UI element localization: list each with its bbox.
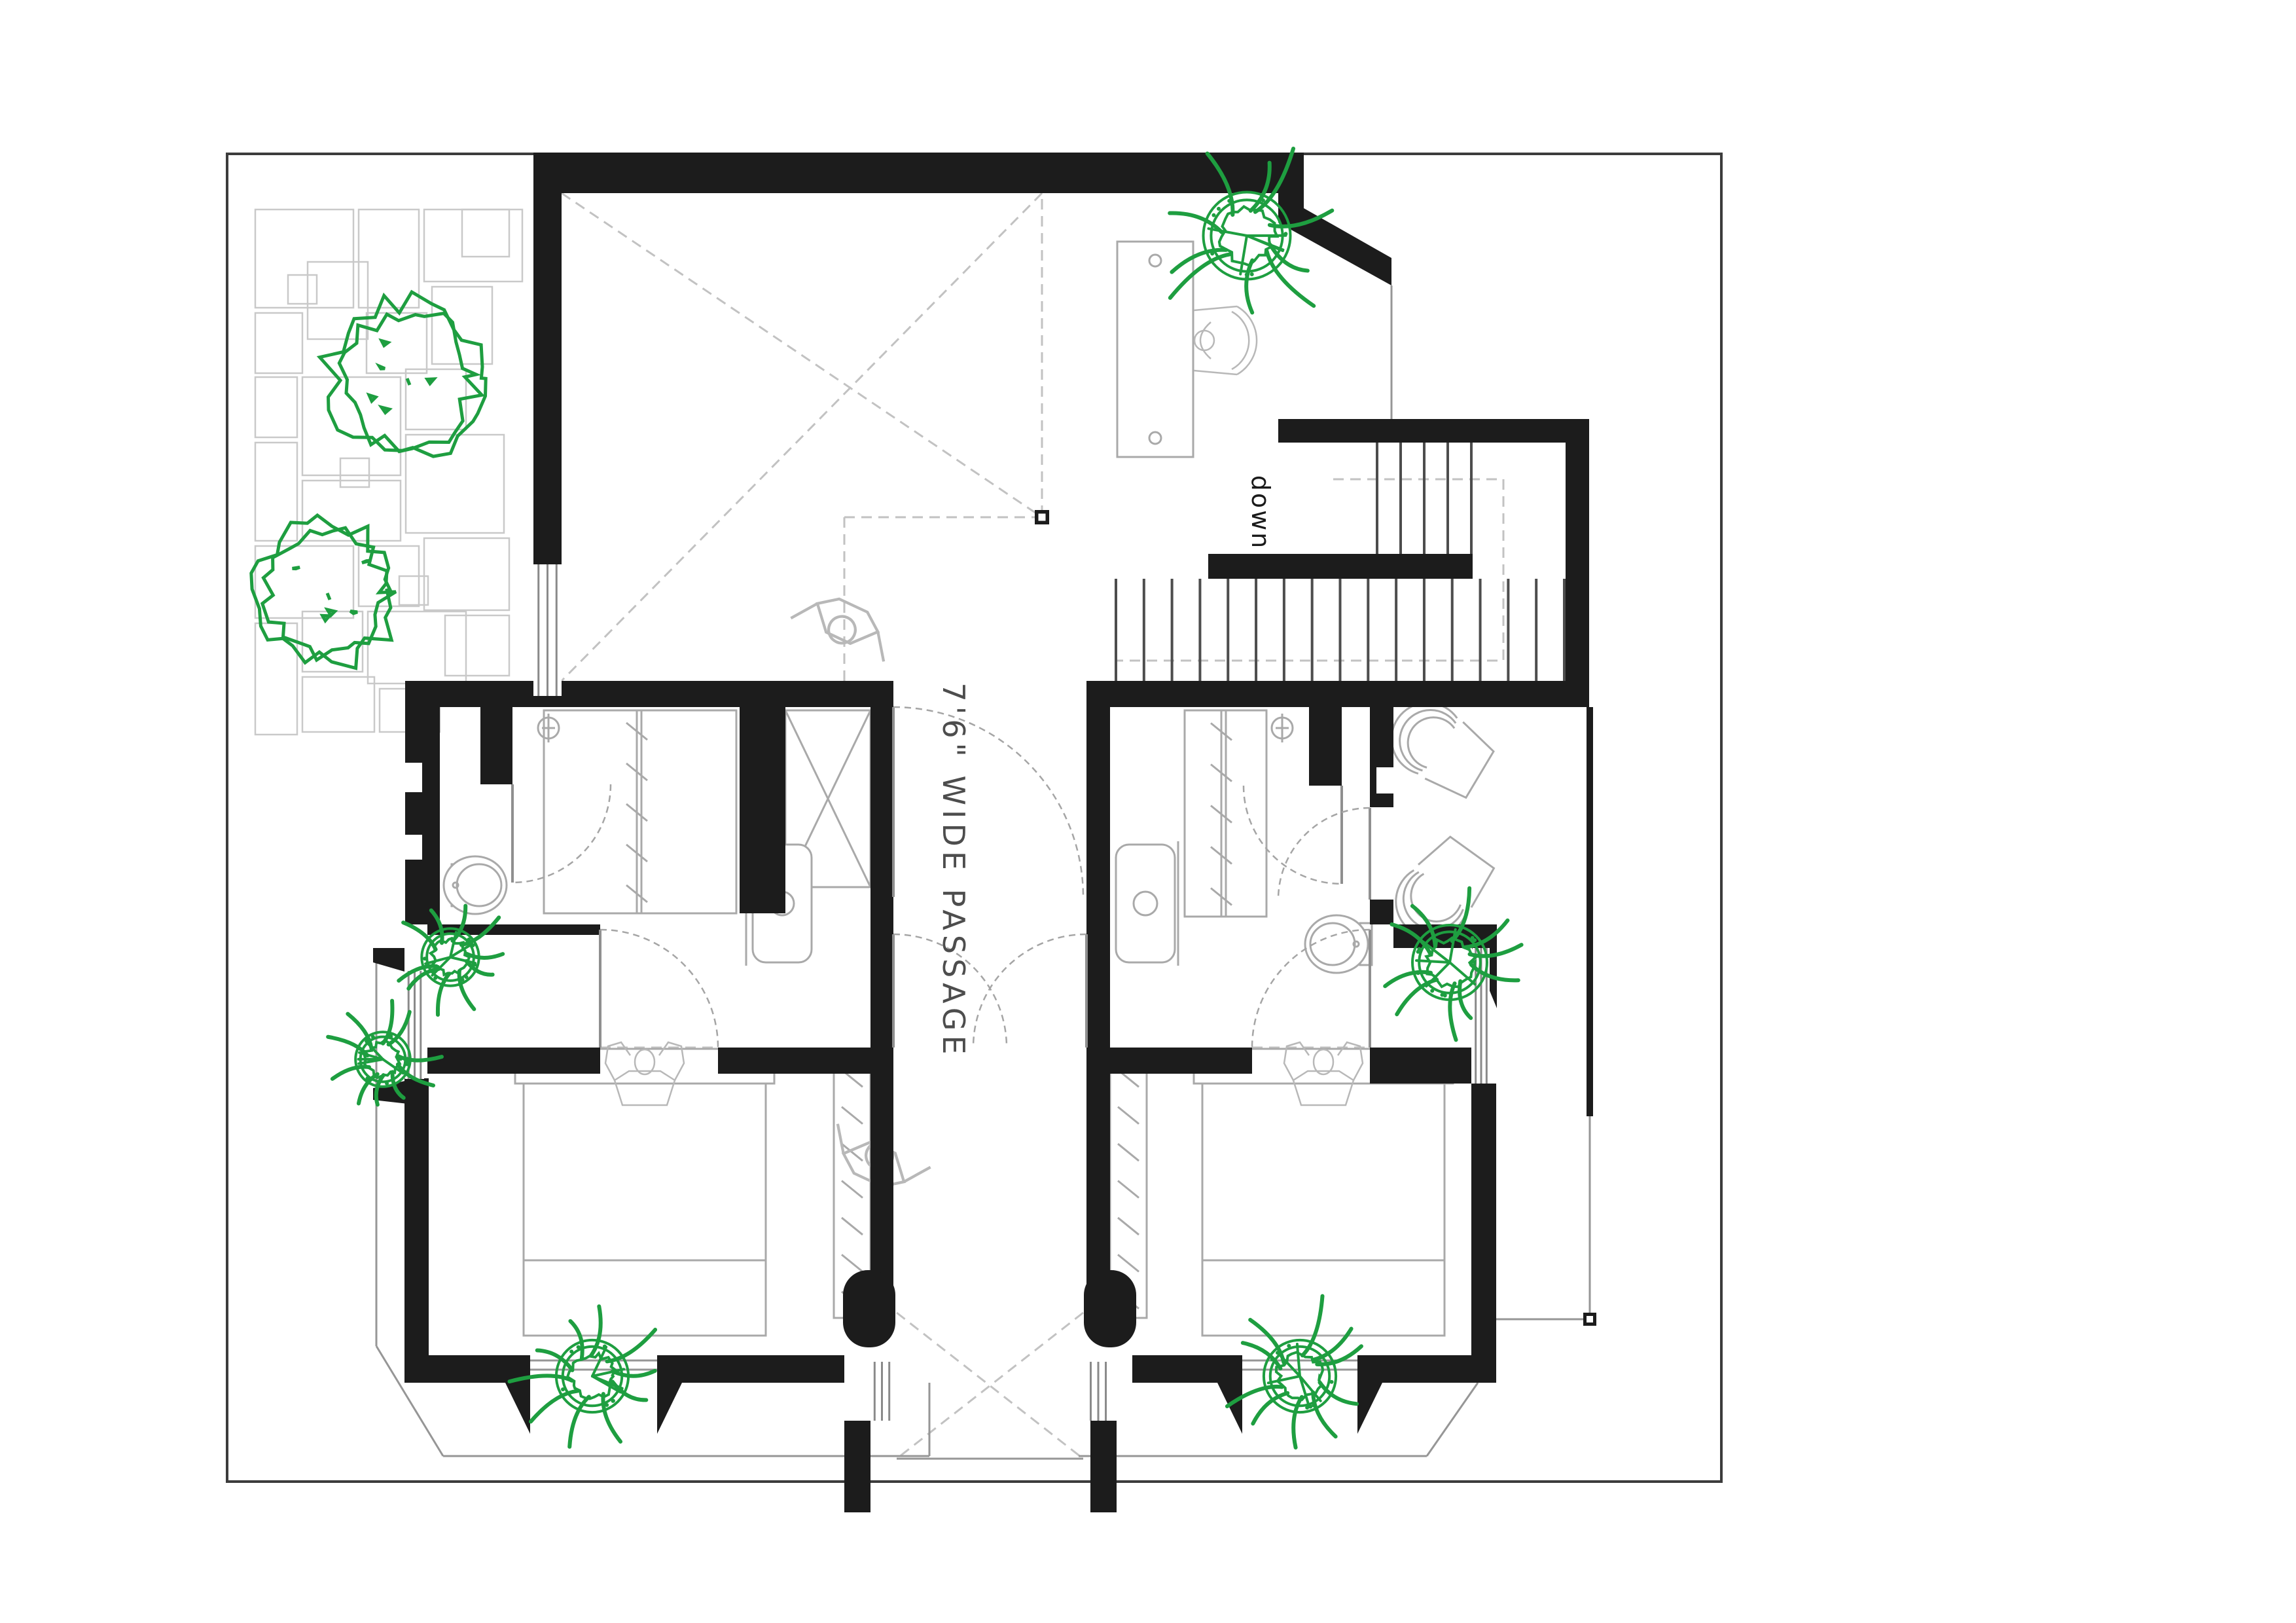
edge-line bbox=[1427, 1383, 1478, 1456]
frond-spoke bbox=[1240, 236, 1247, 274]
speckle bbox=[461, 977, 465, 981]
person-shoulders bbox=[1200, 322, 1211, 359]
speckle bbox=[1210, 251, 1214, 255]
speckle bbox=[1416, 971, 1420, 975]
wall-segment bbox=[1208, 554, 1473, 579]
speckle bbox=[433, 976, 437, 980]
door-swing-arc bbox=[600, 930, 718, 1048]
door-swing-arc bbox=[893, 707, 1083, 897]
light-fixture bbox=[1272, 714, 1293, 742]
wall-rounded-end bbox=[843, 1270, 895, 1347]
wall-niche bbox=[405, 835, 422, 860]
wall-segment bbox=[1086, 681, 1110, 1326]
wall-polygon bbox=[1357, 1355, 1382, 1434]
speckle bbox=[405, 1062, 409, 1066]
wall-niche bbox=[405, 763, 422, 792]
tree-speck bbox=[350, 611, 357, 613]
paver-stone bbox=[462, 210, 509, 257]
wall-segment bbox=[1471, 1084, 1496, 1383]
speckle bbox=[1471, 936, 1475, 940]
tree-speck bbox=[382, 341, 388, 346]
toilet bbox=[444, 856, 507, 914]
wall-segment bbox=[740, 707, 785, 913]
drawing-sheet: 7'6" WIDE PASSAGE down bbox=[0, 0, 2296, 1623]
leaf-whisker bbox=[1246, 261, 1252, 313]
frond-spoke bbox=[1208, 228, 1247, 236]
upper-flight bbox=[1377, 443, 1471, 554]
paver-stone bbox=[255, 210, 353, 308]
door bbox=[973, 934, 1086, 1048]
wardrobe bbox=[1185, 710, 1266, 917]
paver-stone bbox=[255, 377, 297, 437]
wall-segment bbox=[718, 1048, 870, 1074]
vanity-counter bbox=[1116, 845, 1175, 962]
speckle bbox=[405, 1057, 409, 1061]
wall-segment bbox=[1110, 681, 1589, 707]
stair-down-label: down bbox=[1246, 475, 1275, 551]
person-arm bbox=[791, 596, 817, 625]
speckle bbox=[473, 963, 476, 967]
wall-polygon bbox=[1217, 1355, 1242, 1434]
frond-spoke bbox=[1268, 1376, 1300, 1383]
wall-segment bbox=[404, 1078, 429, 1383]
speckle bbox=[1443, 993, 1447, 997]
tree-symbol bbox=[320, 292, 486, 456]
speckle bbox=[1270, 1358, 1274, 1362]
speckle bbox=[389, 1034, 393, 1038]
speckle bbox=[1312, 1404, 1316, 1408]
speckle bbox=[1283, 232, 1287, 236]
paver-stone bbox=[302, 377, 401, 475]
wall-segment bbox=[480, 707, 512, 784]
wall-segment bbox=[1278, 419, 1589, 443]
tree-inner-ring bbox=[339, 314, 482, 452]
property-line bbox=[227, 154, 1721, 1482]
speckle bbox=[471, 943, 475, 947]
frond-spoke bbox=[1297, 1344, 1300, 1376]
speckle bbox=[1227, 199, 1231, 203]
wall-segment bbox=[405, 707, 440, 924]
window bbox=[870, 1362, 893, 1421]
leaf-whisker bbox=[1243, 1343, 1281, 1368]
chair-back bbox=[1232, 312, 1249, 369]
speckle bbox=[1417, 947, 1421, 951]
paver-stone bbox=[255, 443, 297, 541]
wall-niche bbox=[1370, 807, 1393, 900]
door bbox=[600, 930, 718, 1048]
tree-speck bbox=[369, 395, 376, 401]
speckle bbox=[1305, 1406, 1309, 1410]
door bbox=[1278, 808, 1370, 900]
frond-spoke bbox=[1247, 236, 1283, 251]
paver-courtyard bbox=[255, 210, 522, 735]
leaf-whisker bbox=[1313, 1393, 1335, 1437]
paver-stone bbox=[445, 615, 509, 676]
tree-speck bbox=[427, 379, 434, 384]
tree-center-mark bbox=[407, 378, 410, 385]
wall-segment bbox=[405, 681, 893, 707]
paver-stone bbox=[424, 538, 509, 610]
window bbox=[533, 564, 562, 696]
speckle bbox=[365, 1076, 369, 1080]
column-marker-core bbox=[1039, 514, 1046, 521]
frond-spoke bbox=[1416, 960, 1450, 962]
tree-speck bbox=[382, 407, 389, 412]
wall-segment bbox=[844, 1421, 870, 1512]
speckle bbox=[1211, 213, 1215, 217]
armrest bbox=[1194, 371, 1237, 374]
speckle bbox=[1250, 272, 1254, 276]
paver-stone bbox=[424, 210, 522, 282]
paver-stone bbox=[302, 677, 374, 732]
speckle bbox=[423, 957, 427, 960]
door-swing-arc bbox=[973, 934, 1086, 1048]
speckle bbox=[611, 1399, 615, 1403]
door bbox=[893, 707, 1083, 897]
desk-top bbox=[1117, 242, 1193, 457]
wall-segment bbox=[1090, 1421, 1117, 1512]
speckle bbox=[365, 1039, 368, 1043]
tree-speck bbox=[362, 560, 370, 562]
wall-segment bbox=[533, 153, 562, 564]
chair-seat bbox=[1418, 830, 1500, 908]
wall-polygon bbox=[373, 948, 404, 972]
door-swing-arc bbox=[1278, 808, 1370, 900]
speckle bbox=[1308, 1343, 1312, 1347]
floor-plan-canvas: 7'6" WIDE PASSAGE down bbox=[0, 0, 2296, 1623]
paver-stone bbox=[288, 275, 317, 304]
speckle bbox=[442, 980, 446, 984]
tree-speck bbox=[380, 366, 385, 369]
person-arm bbox=[904, 1159, 930, 1189]
speckle bbox=[561, 1387, 565, 1391]
wardrobe bbox=[544, 710, 736, 913]
wall-segment bbox=[427, 1048, 600, 1074]
wall-niche bbox=[1376, 767, 1393, 793]
leaf-whisker bbox=[613, 1371, 655, 1376]
wall-segment bbox=[657, 1355, 844, 1383]
mattress bbox=[524, 1084, 766, 1336]
wall-segment bbox=[870, 681, 893, 1326]
speckle bbox=[569, 1349, 573, 1353]
speckle bbox=[465, 975, 469, 979]
site-boundary bbox=[227, 154, 1721, 1482]
speckle bbox=[371, 1035, 375, 1039]
speckle bbox=[603, 1344, 607, 1348]
wall-segment bbox=[1370, 1048, 1471, 1084]
paver-stone bbox=[255, 313, 302, 373]
lower-flight bbox=[1116, 579, 1564, 681]
wall-segment bbox=[533, 153, 1304, 193]
vanity bbox=[1116, 841, 1178, 966]
wall-segment bbox=[1309, 707, 1342, 786]
wall-segment bbox=[1566, 419, 1589, 707]
speckle bbox=[605, 1403, 609, 1407]
bed bbox=[1194, 1042, 1453, 1336]
speckle bbox=[385, 1082, 389, 1085]
speckle bbox=[467, 938, 471, 941]
desk-chair-person bbox=[1194, 306, 1257, 374]
frond-spoke bbox=[450, 957, 475, 963]
wall-segment bbox=[1110, 1048, 1252, 1074]
wall-polygon bbox=[1278, 193, 1391, 285]
speckle bbox=[1330, 1380, 1334, 1384]
paver-stone bbox=[368, 611, 466, 684]
speckle bbox=[1287, 1344, 1291, 1348]
person-arm bbox=[867, 632, 893, 661]
window bbox=[1086, 1362, 1110, 1421]
wall-polygon bbox=[657, 1355, 682, 1434]
column-marker-core bbox=[1587, 1316, 1593, 1322]
chair-seat bbox=[1424, 722, 1501, 804]
wall-rounded-end bbox=[1084, 1270, 1136, 1347]
dashed-line bbox=[562, 193, 1042, 517]
paver-stone bbox=[367, 313, 427, 373]
speckle bbox=[1261, 198, 1265, 202]
speckle bbox=[1245, 272, 1249, 276]
speckle bbox=[1430, 989, 1434, 993]
tree-speck bbox=[293, 567, 300, 568]
person-head bbox=[1194, 331, 1214, 350]
speckle bbox=[619, 1388, 623, 1392]
tree-speck bbox=[323, 615, 329, 621]
leaf-whisker bbox=[467, 954, 503, 958]
wall-segment bbox=[1587, 707, 1593, 1116]
speckle bbox=[1276, 1351, 1280, 1355]
wardrobe-outline bbox=[544, 710, 736, 913]
speckle bbox=[577, 1345, 581, 1349]
armrest bbox=[1194, 306, 1237, 310]
dashed-line bbox=[562, 193, 1042, 681]
tree-symbol bbox=[251, 515, 396, 668]
tree-center-mark bbox=[327, 593, 330, 600]
chair-back bbox=[1237, 306, 1257, 374]
passage-width-label: 7'6" WIDE PASSAGE bbox=[936, 682, 971, 1059]
speckle bbox=[1217, 207, 1221, 211]
bed bbox=[515, 1042, 774, 1336]
study-desk bbox=[1117, 242, 1193, 457]
wall-polygon bbox=[505, 1355, 530, 1434]
paver-stone bbox=[340, 458, 369, 487]
